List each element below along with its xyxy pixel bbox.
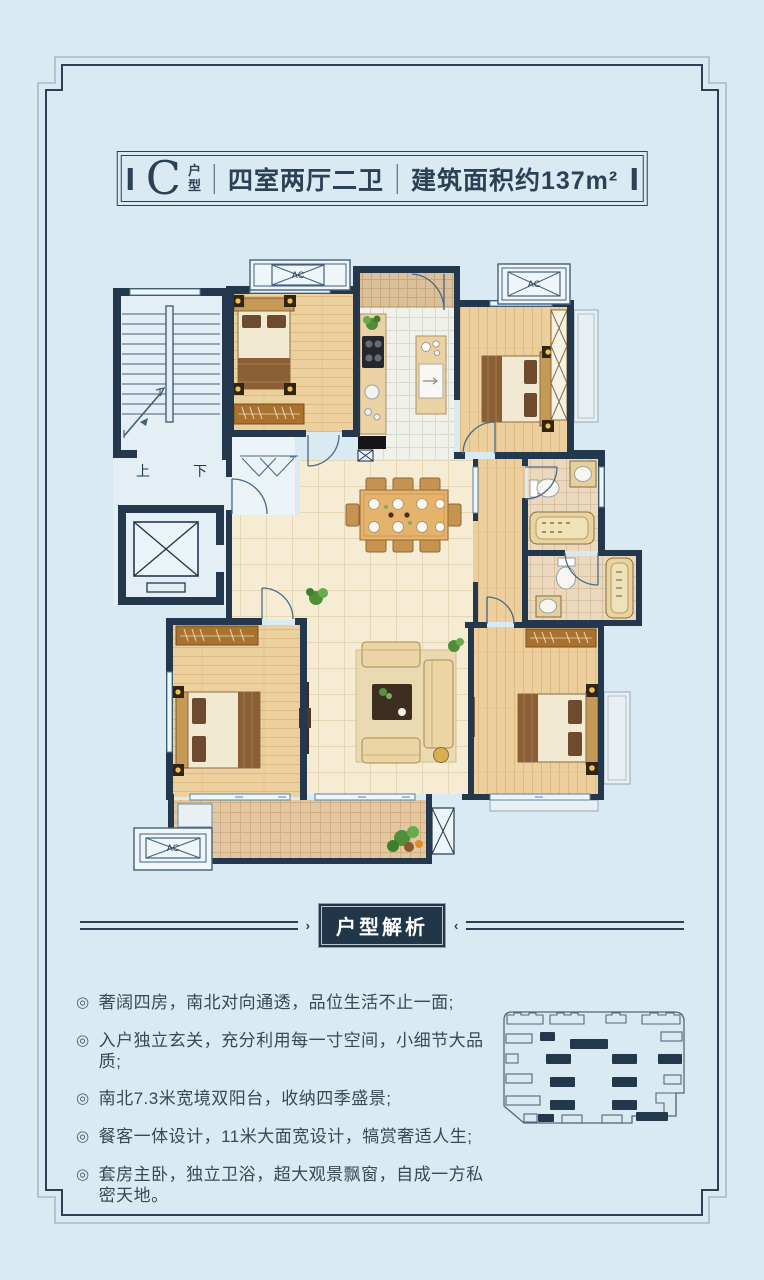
feature-text: 套房主卧，独立卫浴，超大观景飘窗，自成一方私密天地。 — [99, 1164, 496, 1207]
analysis-section-header: › 户型解析 ‹ — [0, 903, 764, 948]
feature-item: ◎套房主卧，独立卫浴，超大观景飘窗，自成一方私密天地。 — [76, 1164, 496, 1207]
title-endbar-right — [631, 168, 636, 190]
utility-shaft — [432, 808, 454, 854]
unit-type-label: 户型 — [188, 164, 201, 194]
title-badge: C 户型 四室两厅二卫 建筑面积约137m² — [117, 151, 648, 206]
header-line-left — [80, 921, 298, 930]
wardrobe-bottomleft — [176, 626, 258, 645]
room-config: 四室两厅二卫 — [228, 161, 384, 197]
title-endbar-left — [128, 168, 133, 190]
header-notch-right: ‹ — [454, 918, 458, 933]
building-area: 建筑面积约137m² — [411, 161, 618, 197]
closet-topright — [551, 310, 567, 420]
stairs-down-label: 下 — [193, 463, 207, 479]
feature-item: ◎入户独立玄关，充分利用每一寸空间，小细节大品质; — [76, 1030, 496, 1073]
feature-text: 奢阔四房，南北对向通透，品位生活不止一面; — [99, 992, 454, 1013]
header-line-right — [466, 921, 684, 930]
unit-type: C 户型 — [146, 158, 201, 199]
unit-type-letter: C — [146, 158, 181, 199]
feature-text: 南北7.3米宽境双阳台，收纳四季盛景; — [99, 1088, 392, 1109]
feature-list: ◎奢阔四房，南北对向通透，品位生活不止一面; ◎入户独立玄关，充分利用每一寸空间… — [76, 992, 496, 1222]
stairs-up-label: 上 — [136, 463, 150, 479]
ac-label-south: AC — [167, 843, 180, 853]
ac-label-northeast: AC — [528, 279, 541, 289]
feature-item: ◎奢阔四房，南北对向通透，品位生活不止一面; — [76, 992, 496, 1014]
bullet-icon: ◎ — [76, 1030, 90, 1052]
bullet-icon: ◎ — [76, 1126, 90, 1148]
site-plan — [480, 990, 710, 1140]
bed-bottomleft — [172, 686, 260, 776]
ac-label-north: AC — [292, 270, 305, 280]
feature-text: 入户独立玄关，充分利用每一寸空间，小细节大品质; — [99, 1030, 496, 1073]
bay-window-master-south — [490, 800, 598, 811]
poster-page: C 户型 四室两厅二卫 建筑面积约137m² — [0, 0, 764, 1280]
hallway-floor — [473, 459, 525, 622]
analysis-heading-badge: 户型解析 — [318, 903, 446, 948]
title-divider-2 — [397, 164, 398, 194]
wardrobe-topleft — [234, 404, 304, 424]
bullet-icon: ◎ — [76, 1088, 90, 1110]
title-divider-1 — [214, 164, 215, 194]
floor-plan: 上 下 — [110, 252, 655, 880]
bed-topright — [482, 346, 554, 432]
kitchen-balcony-floor — [358, 272, 454, 308]
feature-text: 餐客一体设计，11米大面宽设计，犒赏奢适人生; — [99, 1126, 473, 1147]
bullet-icon: ◎ — [76, 1164, 90, 1186]
entry-hall-floor — [232, 437, 295, 515]
feature-item: ◎餐客一体设计，11米大面宽设计，犒赏奢适人生; — [76, 1126, 496, 1148]
bed-topleft — [232, 295, 296, 395]
header-notch-left: › — [306, 918, 310, 933]
bullet-icon: ◎ — [76, 992, 90, 1014]
feature-item: ◎南北7.3米宽境双阳台，收纳四季盛景; — [76, 1088, 496, 1110]
